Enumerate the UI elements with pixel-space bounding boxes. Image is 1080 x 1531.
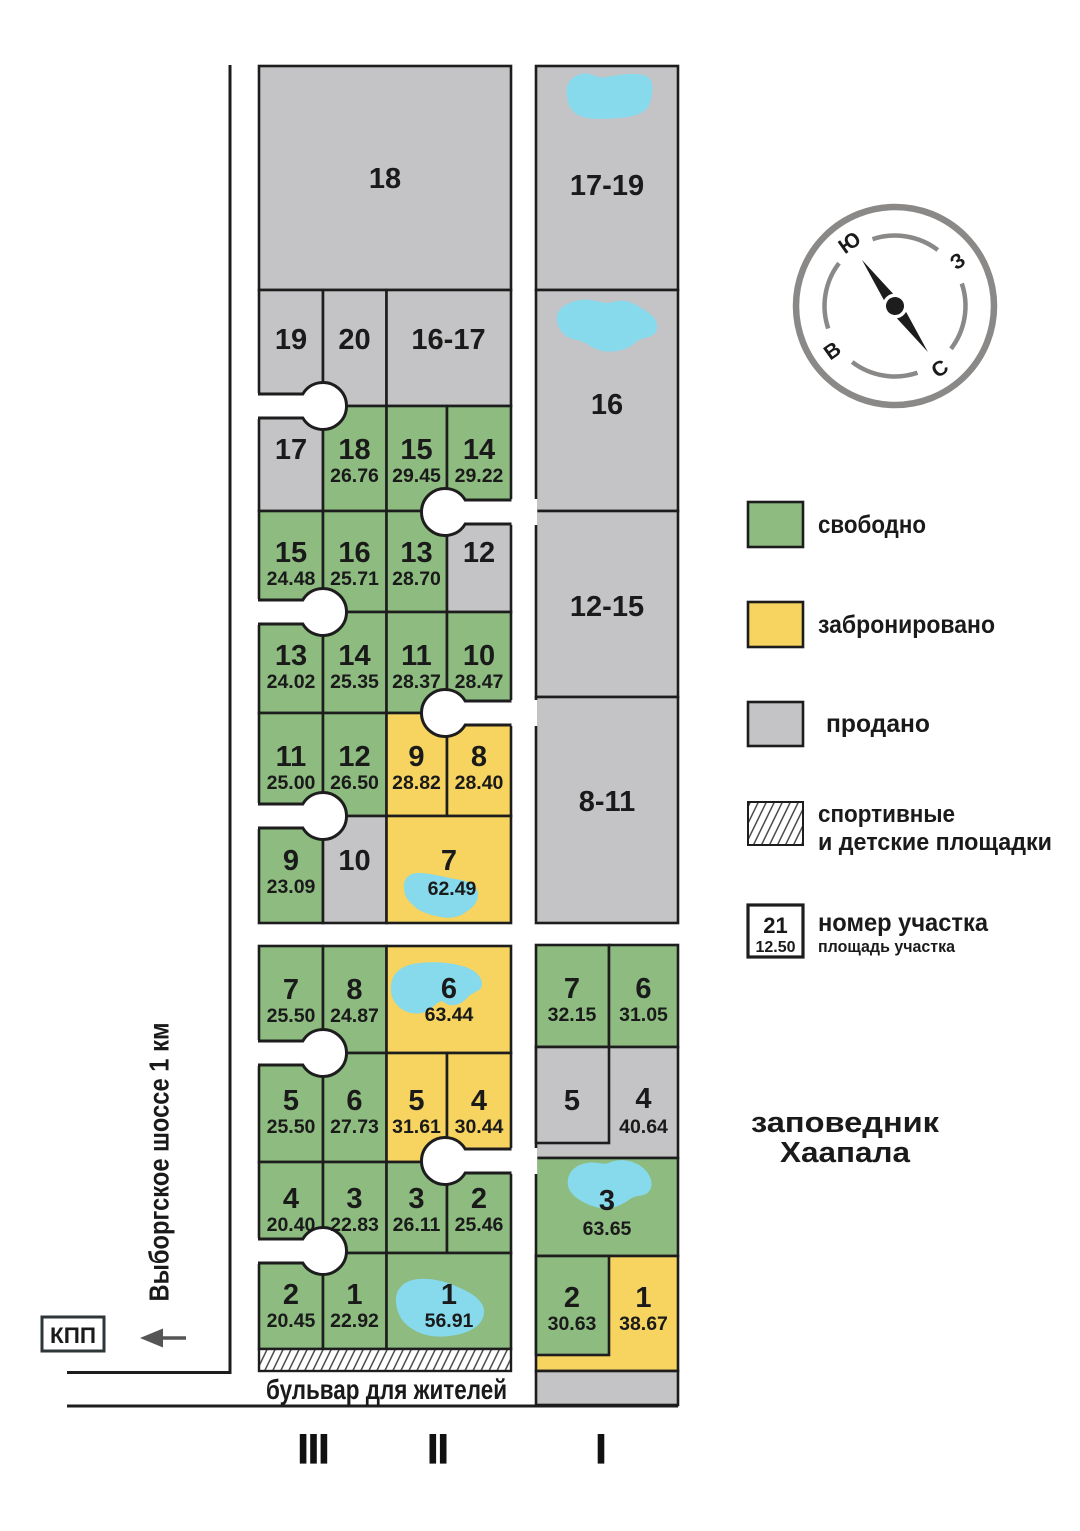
svg-text:30.63: 30.63 (548, 1313, 597, 1335)
svg-text:38.67: 38.67 (619, 1313, 668, 1335)
svg-text:22.92: 22.92 (330, 1310, 379, 1332)
svg-text:25.71: 25.71 (330, 568, 379, 590)
svg-text:5: 5 (408, 1085, 424, 1117)
svg-text:28.37: 28.37 (392, 671, 441, 693)
svg-text:28.47: 28.47 (455, 671, 504, 693)
svg-text:19: 19 (275, 324, 307, 356)
svg-text:номер участка: номер участка (818, 909, 989, 937)
svg-text:площадь участка: площадь участка (818, 937, 955, 956)
svg-text:25.46: 25.46 (455, 1214, 504, 1236)
svg-text:28.40: 28.40 (455, 772, 504, 794)
svg-text:29.22: 29.22 (455, 465, 504, 487)
svg-text:26.76: 26.76 (330, 465, 379, 487)
svg-text:забронировано: забронировано (818, 611, 995, 639)
svg-text:3: 3 (408, 1183, 424, 1215)
svg-text:6: 6 (346, 1085, 362, 1117)
svg-text:6: 6 (441, 973, 457, 1005)
svg-text:8: 8 (471, 741, 487, 773)
svg-text:28.70: 28.70 (392, 568, 441, 590)
svg-text:28.82: 28.82 (392, 772, 441, 794)
svg-text:бульвар для жителей: бульвар для жителей (266, 1374, 507, 1405)
svg-text:4: 4 (283, 1183, 299, 1215)
svg-text:3: 3 (599, 1185, 615, 1217)
svg-text:продано: продано (826, 710, 930, 738)
svg-text:62.49: 62.49 (428, 878, 477, 900)
svg-text:Выборгское шоссе 1 км: Выборгское шоссе 1 км (144, 1023, 175, 1302)
svg-text:31.05: 31.05 (619, 1004, 668, 1026)
svg-text:5: 5 (283, 1085, 299, 1117)
svg-text:15: 15 (400, 434, 432, 466)
svg-text:14: 14 (463, 434, 495, 466)
svg-text:Хаапала: Хаапала (780, 1137, 911, 1169)
svg-text:63.44: 63.44 (425, 1004, 474, 1026)
svg-text:2: 2 (564, 1282, 580, 1314)
svg-text:10: 10 (463, 640, 495, 672)
svg-text:1: 1 (346, 1279, 362, 1311)
svg-text:21: 21 (763, 913, 787, 938)
svg-text:14: 14 (338, 640, 370, 672)
svg-text:3: 3 (346, 1183, 362, 1215)
svg-text:27.73: 27.73 (330, 1116, 379, 1138)
svg-text:11: 11 (276, 741, 307, 773)
svg-text:4: 4 (635, 1083, 651, 1115)
svg-text:17-19: 17-19 (570, 170, 644, 202)
svg-text:31.61: 31.61 (392, 1116, 441, 1138)
svg-text:10: 10 (338, 845, 370, 877)
svg-text:17: 17 (275, 434, 307, 466)
svg-text:8: 8 (346, 974, 362, 1006)
svg-text:заповедник: заповедник (751, 1107, 940, 1139)
svg-text:7: 7 (441, 845, 457, 877)
svg-text:56.91: 56.91 (425, 1310, 474, 1332)
svg-text:23.09: 23.09 (267, 876, 316, 898)
svg-text:9: 9 (283, 845, 299, 877)
svg-text:26.11: 26.11 (393, 1214, 441, 1236)
svg-text:16: 16 (591, 389, 623, 421)
svg-text:7: 7 (564, 973, 580, 1005)
svg-text:7: 7 (283, 974, 299, 1006)
svg-text:20: 20 (338, 324, 370, 356)
svg-text:26.50: 26.50 (330, 772, 379, 794)
svg-text:25.50: 25.50 (267, 1116, 316, 1138)
svg-text:13: 13 (400, 537, 432, 569)
svg-text:40.64: 40.64 (619, 1116, 668, 1138)
svg-text:15: 15 (275, 537, 307, 569)
svg-text:22.83: 22.83 (330, 1214, 379, 1236)
svg-text:18: 18 (369, 163, 401, 195)
svg-text:24.48: 24.48 (267, 568, 316, 590)
svg-text:24.02: 24.02 (267, 671, 316, 693)
svg-text:12.50: 12.50 (755, 939, 795, 956)
svg-text:30.44: 30.44 (455, 1116, 504, 1138)
svg-text:9: 9 (408, 741, 424, 773)
svg-text:6: 6 (635, 973, 651, 1005)
svg-text:12-15: 12-15 (570, 591, 644, 623)
svg-text:11: 11 (401, 640, 432, 672)
svg-text:5: 5 (564, 1085, 580, 1117)
svg-text:1: 1 (441, 1279, 457, 1311)
svg-text:16-17: 16-17 (411, 324, 485, 356)
svg-text:13: 13 (275, 640, 307, 672)
svg-text:25.50: 25.50 (267, 1005, 316, 1027)
svg-text:и детские площадки: и детские площадки (818, 829, 1052, 856)
svg-text:2: 2 (471, 1183, 487, 1215)
svg-text:32.15: 32.15 (548, 1004, 597, 1026)
svg-text:свободно: свободно (818, 511, 926, 539)
svg-text:12: 12 (463, 537, 495, 569)
svg-text:25.00: 25.00 (267, 772, 316, 794)
svg-text:2: 2 (283, 1279, 299, 1311)
svg-text:29.45: 29.45 (392, 465, 441, 487)
svg-text:4: 4 (471, 1085, 487, 1117)
svg-text:16: 16 (338, 537, 370, 569)
svg-text:25.35: 25.35 (330, 671, 379, 693)
svg-text:12: 12 (338, 741, 370, 773)
svg-text:КПП: КПП (50, 1323, 96, 1348)
svg-text:24.87: 24.87 (330, 1005, 379, 1027)
svg-text:8-11: 8-11 (579, 786, 635, 818)
svg-text:63.65: 63.65 (583, 1218, 632, 1240)
svg-text:1: 1 (635, 1282, 651, 1314)
svg-text:18: 18 (338, 434, 370, 466)
svg-text:20.45: 20.45 (267, 1310, 316, 1332)
svg-text:спортивные: спортивные (818, 801, 955, 828)
svg-text:20.40: 20.40 (267, 1214, 316, 1236)
